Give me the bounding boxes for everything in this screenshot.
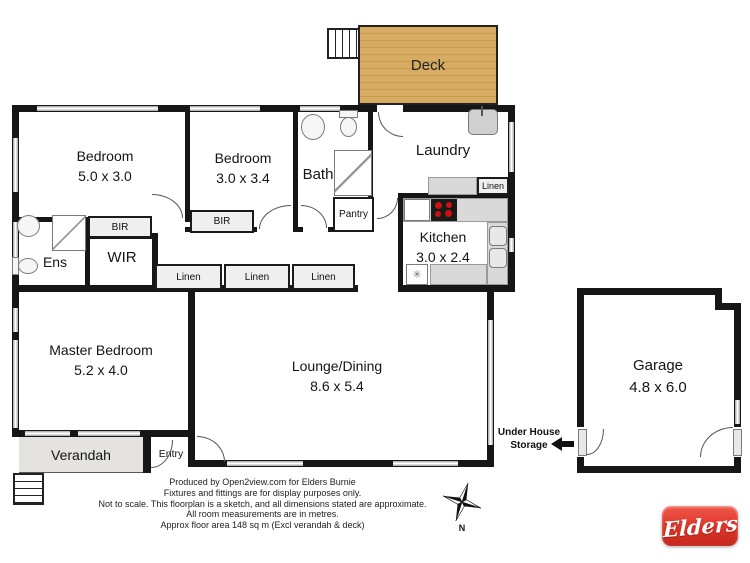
verandah-label: Verandah — [51, 447, 111, 463]
laundry-tub-icon — [468, 109, 498, 135]
shower-icon — [52, 215, 86, 251]
stove-icon — [431, 199, 457, 221]
room-name: Kitchen — [420, 229, 467, 245]
disclaimer-line: Not to scale. This floorplan is a sketch… — [30, 499, 495, 510]
basin-icon — [301, 114, 325, 140]
cupboard-label: Linen — [311, 272, 335, 283]
disclaimer-line: Produced by Open2view.com for Elders Bur… — [30, 477, 495, 488]
room-label-laundry: Laundry — [403, 140, 483, 162]
deck-stairs — [327, 28, 360, 59]
room-name: Bedroom — [77, 148, 134, 164]
disclaimer-line: Approx floor area 148 sq m (Excl veranda… — [30, 520, 495, 531]
sink-icon — [489, 248, 507, 268]
window — [393, 461, 458, 466]
door-panel — [578, 429, 587, 456]
floorplan-canvas: Deck BIR BIR Li — [0, 0, 750, 563]
window — [509, 122, 514, 172]
wall-segment — [398, 285, 494, 292]
wall-segment — [577, 466, 741, 473]
storage-arrow-icon — [561, 441, 574, 447]
kitchen-bench — [404, 199, 430, 221]
wall-segment — [188, 285, 195, 467]
cupboard-label: Pantry — [339, 209, 368, 220]
window — [488, 320, 493, 445]
window — [227, 461, 303, 466]
elders-logo: Elders — [662, 506, 738, 546]
door-arc — [378, 112, 403, 137]
window — [300, 106, 340, 111]
room-name: Lounge/Dining — [292, 358, 382, 374]
note-line: Storage — [510, 440, 547, 451]
door-arc — [197, 436, 225, 462]
wall-segment — [185, 112, 190, 222]
cupboard-pantry: Pantry — [333, 197, 374, 232]
disclaimer-line: All room measurements are in metres. — [30, 509, 495, 520]
door-arc — [259, 205, 291, 229]
room-label-bath: Bath — [296, 164, 340, 186]
room-label-wir: WIR — [96, 247, 148, 269]
room-label-garage: Garage 4.8 x 6.0 — [608, 355, 708, 399]
cupboard-linen: Linen — [477, 177, 509, 195]
deck-area: Deck — [358, 25, 498, 105]
room-label-ens: Ens — [33, 252, 77, 272]
room-label-bedroom1: Bedroom 5.0 x 3.0 — [30, 146, 180, 187]
cupboard-label: BIR — [214, 216, 231, 227]
room-dims: 4.8 x 6.0 — [608, 377, 708, 399]
verandah-area: Verandah — [19, 437, 143, 473]
window — [25, 431, 70, 436]
deck-label: Deck — [411, 57, 445, 74]
entry-label: Entry — [152, 448, 190, 460]
cupboard-bir: BIR — [88, 216, 152, 238]
compass-north-label: N — [454, 523, 470, 533]
room-label-bedroom2: Bedroom 3.0 x 3.4 — [192, 148, 294, 189]
door-opening — [377, 105, 403, 112]
door-arc — [700, 427, 733, 457]
cupboard-label: Linen — [482, 181, 504, 191]
window — [13, 138, 18, 192]
window — [190, 106, 260, 111]
wall-segment — [577, 288, 722, 295]
window — [13, 308, 18, 332]
room-name: Bedroom — [215, 150, 272, 166]
cupboard-label: BIR — [112, 222, 129, 233]
sink-icon — [489, 226, 507, 246]
cupboard-label: Linen — [176, 272, 200, 283]
room-dims: 5.2 x 4.0 — [22, 360, 180, 380]
wall-segment — [143, 435, 151, 473]
disclaimer-line: Fixtures and fittings are for display pu… — [30, 488, 495, 499]
window — [735, 400, 740, 424]
window — [509, 238, 514, 252]
cupboard-label: Linen — [245, 272, 269, 283]
wall-segment — [577, 288, 584, 427]
room-name: Garage — [633, 357, 683, 374]
door-arc — [587, 429, 604, 455]
window — [37, 106, 158, 111]
cupboard-bir: BIR — [190, 210, 254, 233]
elders-logo-text: Elders — [662, 510, 737, 542]
window — [78, 431, 140, 436]
room-dims: 8.6 x 5.4 — [258, 376, 416, 396]
door-arc — [301, 205, 327, 228]
cupboard-linen: Linen — [224, 264, 290, 290]
door-panel — [733, 429, 742, 456]
door-arc — [152, 194, 183, 218]
room-label-lounge: Lounge/Dining 8.6 x 5.4 — [258, 356, 416, 397]
window — [13, 340, 18, 428]
room-label-kitchen: Kitchen 3.0 x 2.4 — [399, 227, 487, 268]
door-arc — [377, 198, 398, 219]
basin-icon — [17, 215, 40, 237]
room-label-master: Master Bedroom 5.2 x 4.0 — [22, 340, 180, 381]
laundry-counter — [428, 177, 477, 195]
room-dims: 3.0 x 3.4 — [192, 168, 294, 188]
toilet-icon — [340, 117, 357, 137]
cupboard-linen: Linen — [155, 264, 222, 290]
tap-icon — [481, 106, 483, 116]
room-dims: 5.0 x 3.0 — [30, 166, 180, 186]
compass-rose-icon — [436, 478, 488, 526]
cupboard-linen: Linen — [292, 264, 355, 290]
room-dims: 3.0 x 2.4 — [399, 247, 487, 267]
room-name: Master Bedroom — [49, 342, 152, 358]
disclaimer-text: Produced by Open2view.com for Elders Bur… — [30, 477, 495, 531]
